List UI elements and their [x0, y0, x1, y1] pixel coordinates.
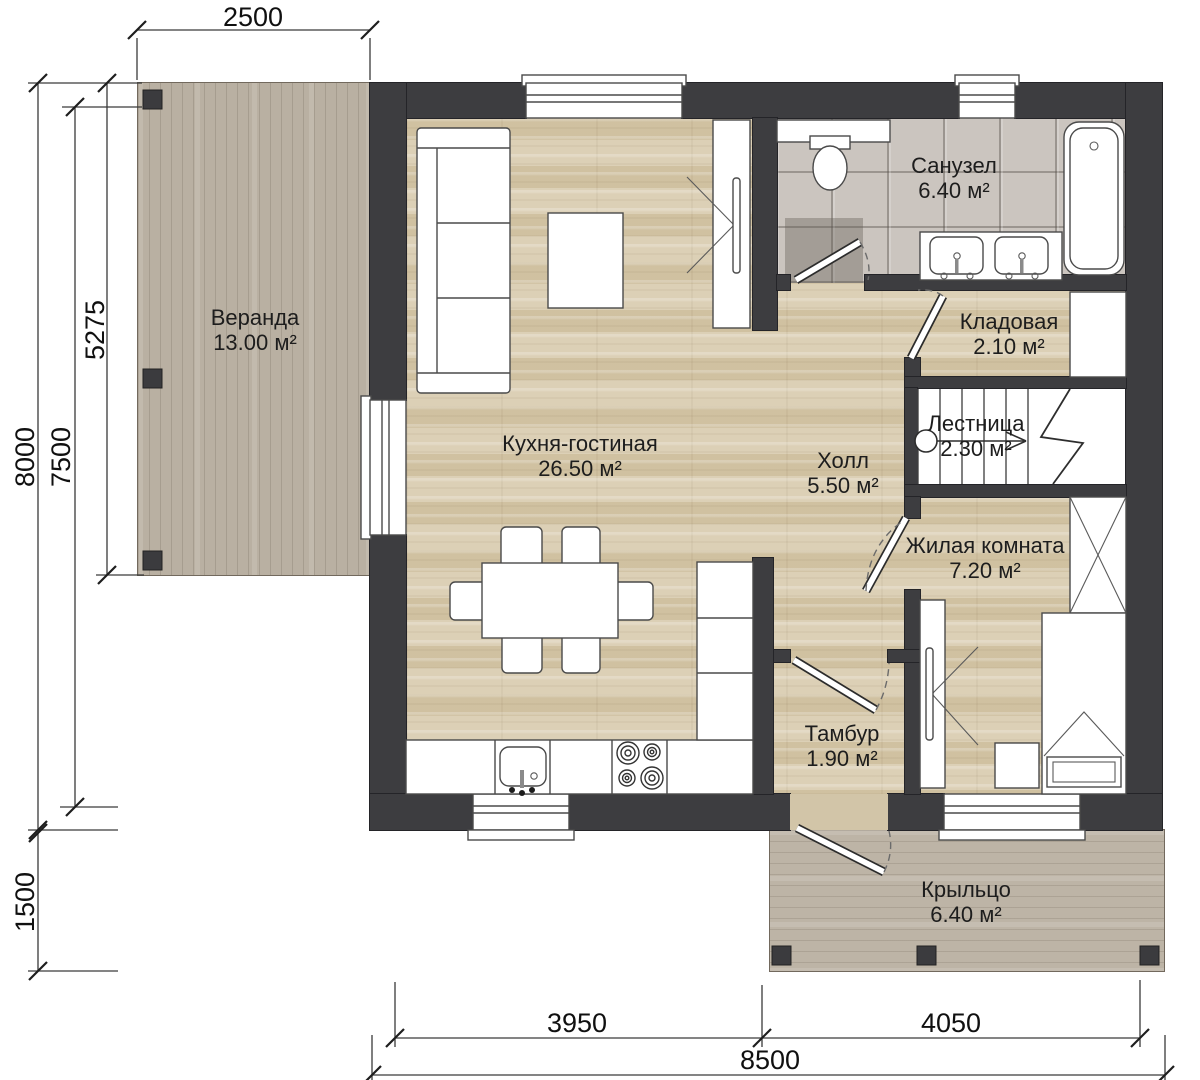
room-area: 13.00 м² — [155, 330, 355, 355]
wall-right — [1126, 83, 1162, 830]
room-area: 26.50 м² — [480, 456, 680, 481]
room-label-storage: Кладовая 2.10 м² — [909, 309, 1109, 359]
wall-bathroom-west — [753, 118, 777, 330]
room-area: 1.90 м² — [742, 746, 942, 771]
wall-tambour-north-left — [773, 650, 790, 662]
wall-tambour-north-right — [888, 650, 920, 662]
dim-top-2500: 2500 — [188, 2, 318, 32]
dim-left-8000: 8000 — [10, 392, 40, 522]
room-label-porch: Крыльцо 6.40 м² — [866, 877, 1066, 927]
dim-left-7500: 7500 — [46, 392, 76, 522]
wall-bottom-3 — [888, 794, 944, 830]
dim-bottom-3950: 3950 — [512, 1008, 642, 1038]
wall-bottom-1 — [370, 794, 473, 830]
wall-bathroom-south-stub — [777, 275, 790, 290]
room-name: Санузел — [854, 153, 1054, 178]
wall-storage-south — [905, 377, 1126, 388]
room-area: 6.40 м² — [854, 178, 1054, 203]
room-name: Холл — [743, 448, 943, 473]
room-name: Крыльцо — [866, 877, 1066, 902]
room-label-hall: Холл 5.50 м² — [743, 448, 943, 498]
room-label-bedroom: Жилая комната 7.20 м² — [885, 533, 1085, 583]
room-label-bathroom: Санузел 6.40 м² — [854, 153, 1054, 203]
room-area: 2.10 м² — [909, 334, 1109, 359]
dim-bottom-8500: 8500 — [705, 1045, 835, 1075]
dim-left-1500: 1500 — [10, 837, 40, 967]
window-top-kitchen — [522, 75, 686, 118]
wall-bathroom-south — [865, 275, 1126, 290]
room-name: Тамбур — [742, 721, 942, 746]
wall-top-2 — [682, 83, 959, 118]
floor-plan: Веранда 13.00 м² Кухня-гостиная 26.50 м²… — [0, 0, 1200, 1080]
room-name: Кладовая — [909, 309, 1109, 334]
window-top-bathroom — [955, 75, 1019, 118]
room-name: Лестница — [891, 411, 1061, 436]
wall-bedroom-west-stub — [905, 497, 920, 518]
room-name: Веранда — [155, 305, 355, 330]
bathroom-dark-tile-patch — [785, 218, 863, 283]
wall-left-2 — [370, 535, 406, 830]
room-label-tambour: Тамбур 1.90 м² — [742, 721, 942, 771]
wall-left-1 — [370, 83, 406, 400]
room-area: 6.40 м² — [866, 902, 1066, 927]
room-area: 5.50 м² — [743, 473, 943, 498]
room-area: 7.20 м² — [885, 558, 1085, 583]
room-label-veranda: Веранда 13.00 м² — [155, 305, 355, 355]
room-label-kitchen: Кухня-гостиная 26.50 м² — [480, 431, 680, 481]
dim-left-5275: 5275 — [80, 265, 110, 395]
wall-bottom-2 — [569, 794, 790, 830]
room-name: Кухня-гостиная — [480, 431, 680, 456]
window-bottom-kitchen — [468, 794, 574, 840]
wall-bottom-4 — [1080, 794, 1162, 830]
dim-bottom-4050: 4050 — [886, 1008, 1016, 1038]
entrance-threshold — [790, 794, 888, 830]
room-name: Жилая комната — [885, 533, 1085, 558]
